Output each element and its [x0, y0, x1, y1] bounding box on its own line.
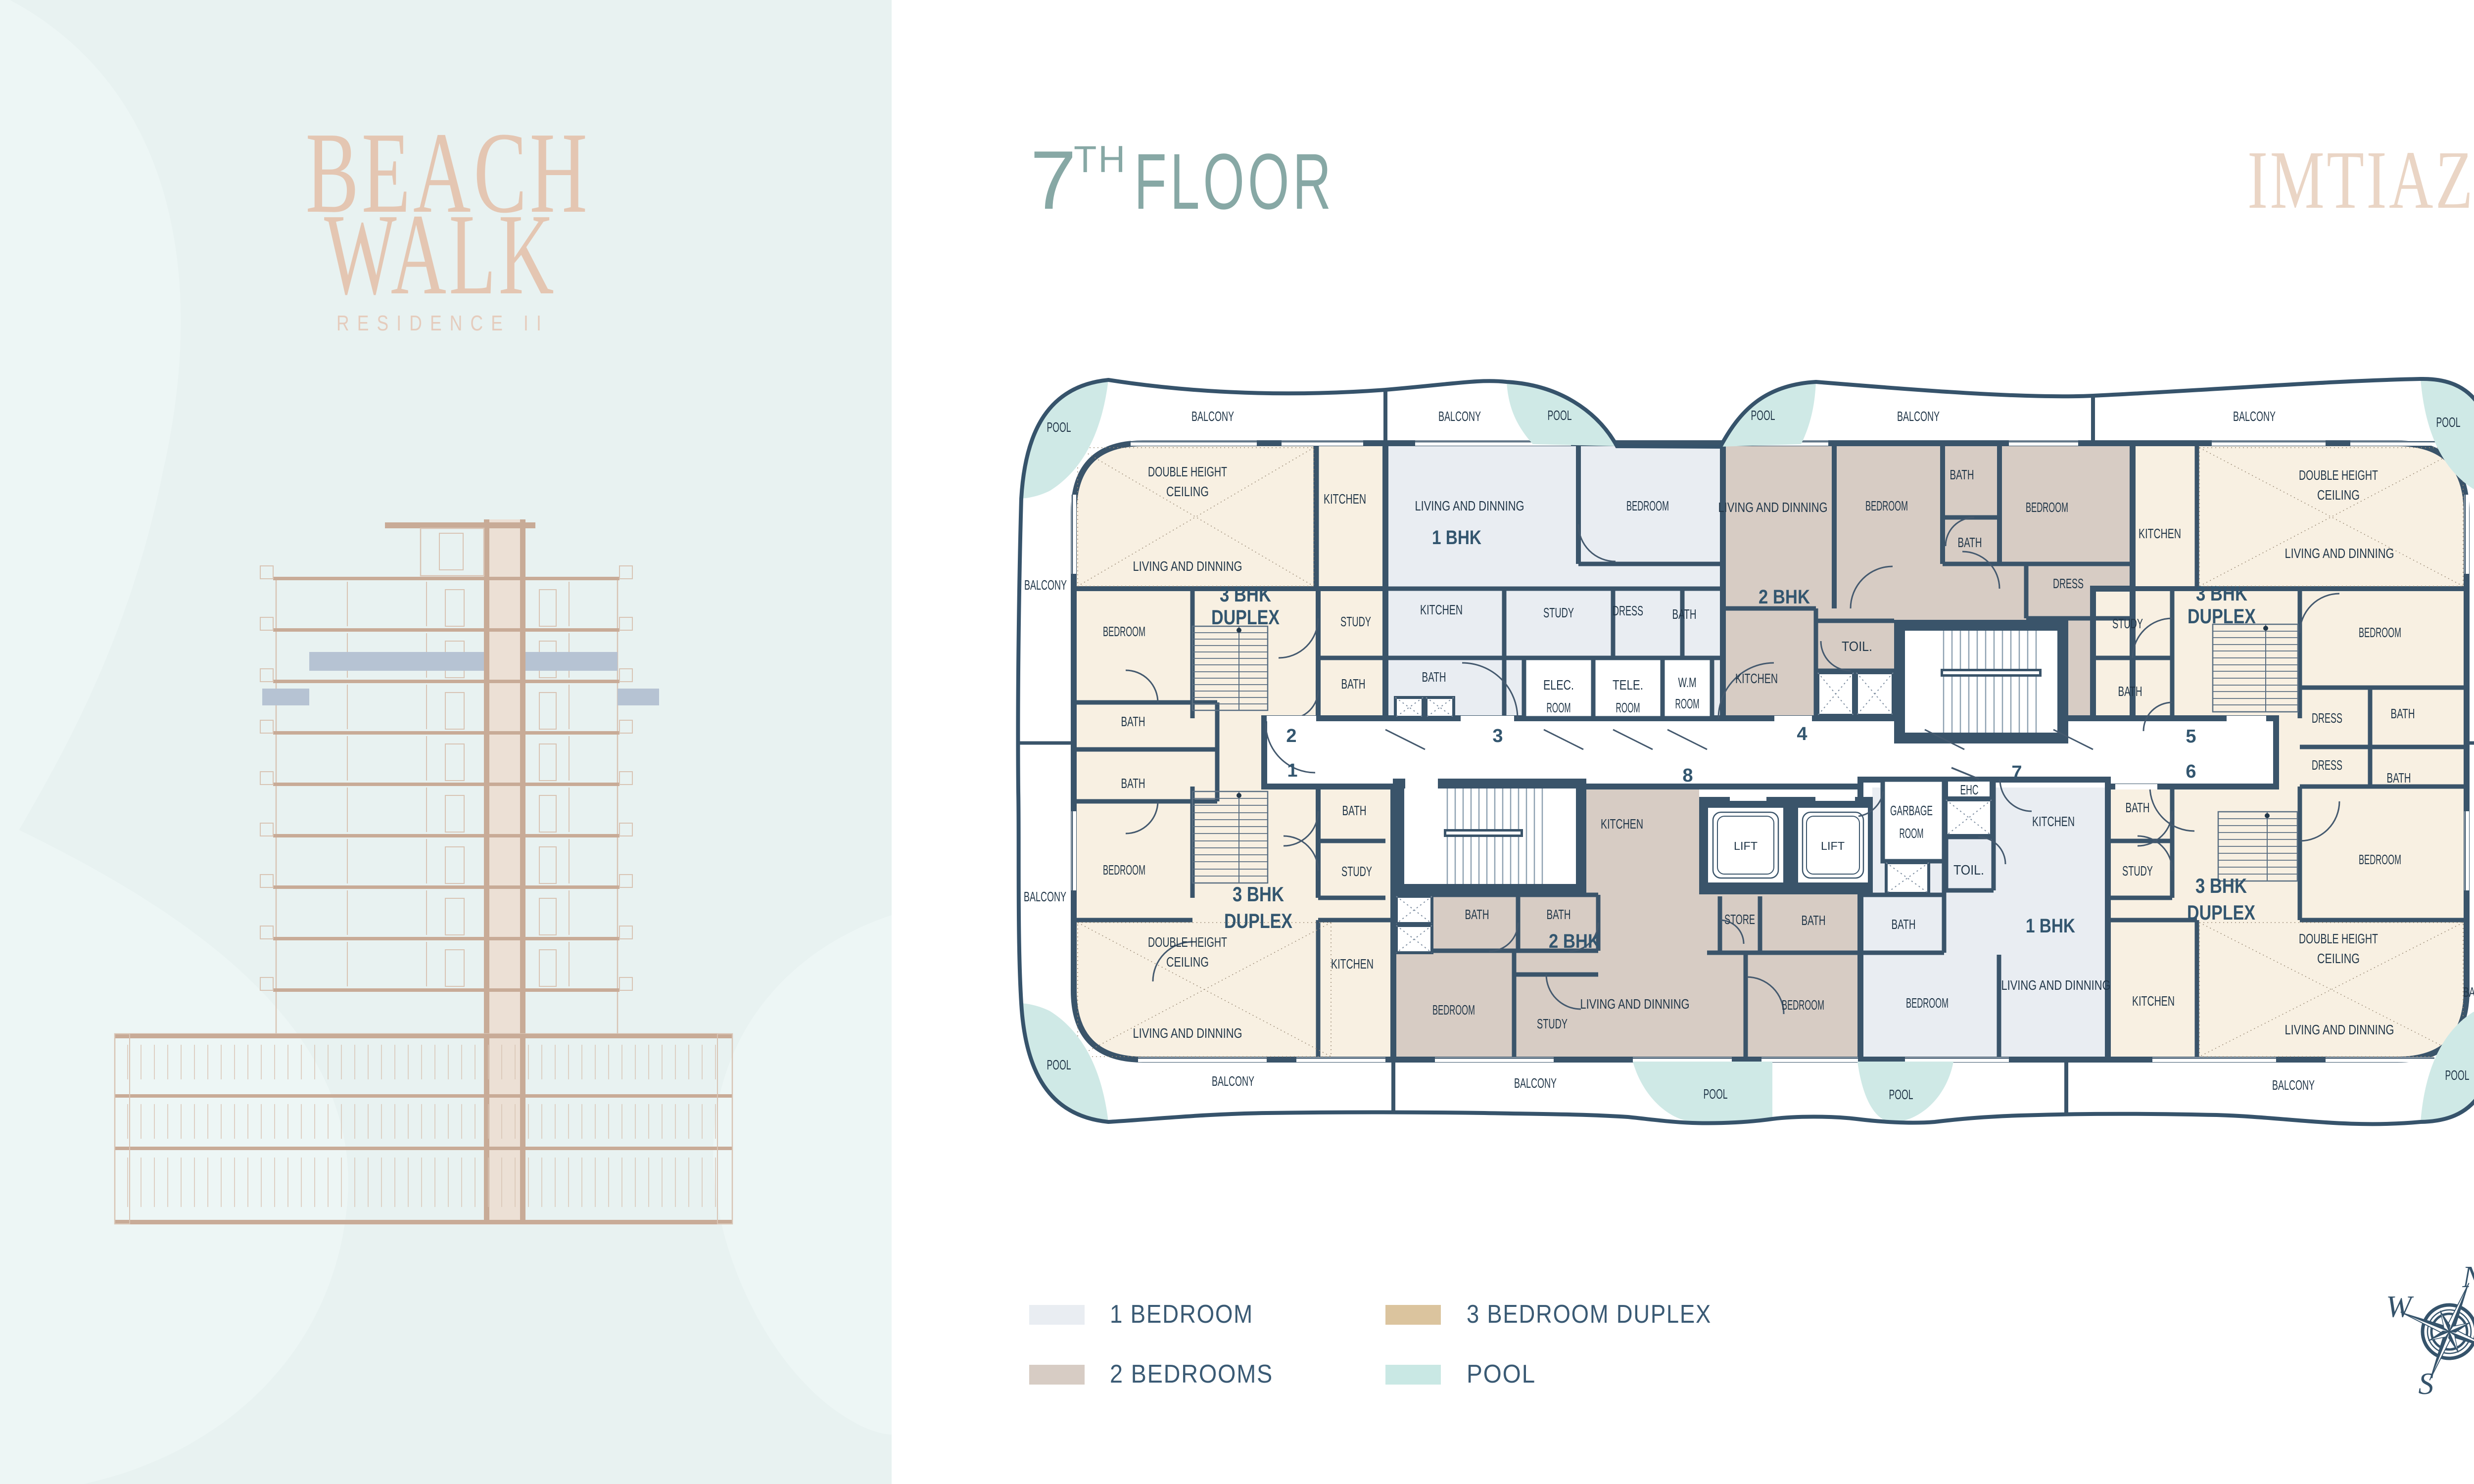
- svg-text:BALCONY: BALCONY: [2272, 1077, 2315, 1093]
- svg-text:KITCHEN: KITCHEN: [2132, 993, 2175, 1009]
- svg-text:ROOM: ROOM: [1547, 700, 1571, 715]
- svg-text:BEDROOM: BEDROOM: [1782, 997, 1824, 1013]
- svg-text:BEDROOM: BEDROOM: [2026, 500, 2068, 515]
- svg-text:1 BHK: 1 BHK: [2026, 915, 2075, 937]
- svg-text:3 BHK: 3 BHK: [2196, 582, 2247, 605]
- svg-text:3 BHK: 3 BHK: [1233, 882, 1284, 906]
- svg-text:LIVING AND DINNING: LIVING AND DINNING: [1415, 498, 1524, 513]
- svg-text:BALCONY: BALCONY: [1438, 409, 1481, 424]
- svg-text:LIVING AND DINNING: LIVING AND DINNING: [2285, 546, 2394, 561]
- svg-text:DRESS: DRESS: [1613, 603, 1643, 618]
- svg-text:ROOM: ROOM: [1900, 826, 1924, 841]
- svg-text:STUDY: STUDY: [1537, 1016, 1568, 1031]
- svg-text:BALCONY: BALCONY: [2233, 409, 2276, 424]
- svg-text:EHC: EHC: [1960, 782, 1979, 797]
- svg-text:2 BHK: 2 BHK: [1759, 586, 1810, 608]
- svg-text:IMTIAZ: IMTIAZ: [2247, 134, 2474, 226]
- svg-text:POOL: POOL: [1751, 408, 1775, 423]
- svg-text:2: 2: [1286, 726, 1296, 746]
- svg-text:ROOM: ROOM: [1616, 700, 1640, 715]
- svg-text:KITCHEN: KITCHEN: [1735, 671, 1778, 686]
- svg-text:ROOM: ROOM: [1675, 696, 1700, 711]
- svg-text:BEDROOM: BEDROOM: [1103, 624, 1145, 639]
- svg-text:3 BEDROOM DUPLEX: 3 BEDROOM DUPLEX: [1467, 1300, 1712, 1329]
- svg-text:BATH: BATH: [1422, 669, 1446, 685]
- svg-text:BATH: BATH: [2391, 706, 2415, 721]
- svg-text:1: 1: [1287, 760, 1297, 781]
- svg-text:GARBAGE: GARBAGE: [1890, 803, 1933, 818]
- svg-text:POOL: POOL: [1047, 1057, 1071, 1072]
- svg-text:POOL: POOL: [1889, 1087, 1913, 1102]
- svg-text:STUDY: STUDY: [1341, 864, 1372, 879]
- svg-text:1 BHK: 1 BHK: [1432, 527, 1481, 549]
- svg-text:BATH: BATH: [2126, 800, 2150, 815]
- svg-text:STUDY: STUDY: [1340, 614, 1371, 629]
- svg-text:BALCONY: BALCONY: [1897, 409, 1940, 424]
- svg-text:BATH: BATH: [1121, 776, 1145, 791]
- svg-text:KITCHEN: KITCHEN: [2139, 526, 2181, 541]
- svg-text:TELE.: TELE.: [1613, 677, 1643, 693]
- svg-text:KITCHEN: KITCHEN: [1601, 816, 1643, 832]
- svg-text:BEDROOM: BEDROOM: [1626, 498, 1669, 513]
- svg-text:LIFT: LIFT: [1821, 839, 1845, 852]
- svg-text:POOL: POOL: [2436, 415, 2461, 430]
- svg-text:CEILING: CEILING: [2317, 487, 2360, 503]
- svg-text:POOL: POOL: [2445, 1067, 2470, 1083]
- svg-text:CEILING: CEILING: [1166, 954, 1209, 970]
- svg-text:CEILING: CEILING: [1166, 484, 1209, 499]
- svg-text:BATH: BATH: [1121, 714, 1145, 729]
- svg-text:BATH: BATH: [1342, 803, 1367, 818]
- svg-text:BEDROOM: BEDROOM: [2359, 852, 2401, 867]
- svg-text:CEILING: CEILING: [2317, 951, 2360, 966]
- svg-text:3: 3: [1492, 726, 1503, 746]
- svg-text:POOL: POOL: [1467, 1360, 1536, 1389]
- svg-text:BATH: BATH: [1547, 907, 1571, 922]
- svg-text:BALCONY: BALCONY: [1191, 409, 1234, 424]
- svg-text:BALCONY: BALCONY: [1514, 1075, 1557, 1091]
- svg-text:DOUBLE HEIGHT: DOUBLE HEIGHT: [1148, 464, 1227, 479]
- svg-text:BATH: BATH: [2387, 770, 2411, 786]
- svg-text:FLOOR: FLOOR: [1134, 137, 1334, 226]
- svg-text:2 BHK: 2 BHK: [1549, 930, 1600, 952]
- svg-text:BEDROOM: BEDROOM: [1103, 862, 1145, 878]
- svg-text:POOL: POOL: [1548, 408, 1572, 423]
- svg-text:W.M: W.M: [1678, 675, 1697, 690]
- svg-text:LIVING AND DINNING: LIVING AND DINNING: [1580, 996, 1690, 1012]
- svg-text:BATH: BATH: [1892, 917, 1916, 932]
- svg-text:BATH: BATH: [1958, 535, 1982, 550]
- svg-text:BATH: BATH: [1672, 606, 1697, 622]
- svg-text:DUPLEX: DUPLEX: [1211, 605, 1280, 629]
- svg-text:LIVING AND DINNING: LIVING AND DINNING: [2285, 1022, 2394, 1037]
- svg-text:6: 6: [2186, 761, 2196, 782]
- svg-text:3 BHK: 3 BHK: [1220, 583, 1271, 606]
- svg-text:BATH: BATH: [1341, 676, 1366, 692]
- svg-text:8: 8: [1682, 765, 1693, 786]
- svg-text:POOL: POOL: [1047, 419, 1071, 435]
- svg-text:2 BEDROOMS: 2 BEDROOMS: [1110, 1360, 1273, 1389]
- svg-text:4: 4: [1797, 724, 1807, 744]
- svg-text:TOIL.: TOIL.: [1842, 639, 1872, 654]
- svg-text:BEDROOM: BEDROOM: [1865, 498, 1908, 513]
- svg-text:DUPLEX: DUPLEX: [1224, 909, 1292, 932]
- svg-text:3 BHK: 3 BHK: [2195, 874, 2247, 897]
- svg-text:BEDROOM: BEDROOM: [1906, 995, 1949, 1011]
- svg-text:DRESS: DRESS: [2312, 710, 2342, 726]
- svg-text:POOL: POOL: [1704, 1086, 1728, 1102]
- svg-text:LIVING AND DINNING: LIVING AND DINNING: [1718, 500, 1828, 515]
- svg-text:KITCHEN: KITCHEN: [1420, 602, 1463, 617]
- svg-text:RESIDENCE II: RESIDENCE II: [336, 311, 549, 335]
- svg-text:LIFT: LIFT: [1734, 839, 1758, 852]
- svg-text:STORE: STORE: [1724, 912, 1755, 927]
- svg-text:LIVING AND DINNING: LIVING AND DINNING: [1133, 558, 1242, 574]
- svg-text:7: 7: [1030, 134, 1076, 227]
- svg-text:BATH: BATH: [1802, 913, 1826, 928]
- svg-text:1 BEDROOM: 1 BEDROOM: [1110, 1300, 1253, 1329]
- svg-text:7: 7: [2011, 762, 2022, 783]
- svg-text:BEDROOM: BEDROOM: [2359, 625, 2401, 640]
- svg-text:KITCHEN: KITCHEN: [1331, 956, 1374, 972]
- svg-text:BATH: BATH: [1950, 467, 1974, 482]
- svg-text:BEDROOM: BEDROOM: [1432, 1002, 1475, 1018]
- svg-text:DRESS: DRESS: [2312, 757, 2342, 773]
- svg-text:KITCHEN: KITCHEN: [2032, 814, 2075, 829]
- svg-text:DUPLEX: DUPLEX: [2187, 901, 2255, 924]
- svg-text:N: N: [2462, 1260, 2474, 1294]
- svg-text:BALCONY: BALCONY: [1212, 1073, 1254, 1089]
- svg-text:BALCONY: BALCONY: [2463, 984, 2474, 1000]
- svg-text:BALCONY: BALCONY: [1024, 577, 1067, 593]
- svg-text:BATH: BATH: [2118, 684, 2142, 699]
- svg-text:S: S: [2419, 1367, 2434, 1401]
- svg-text:BATH: BATH: [1465, 907, 1489, 922]
- svg-text:TH: TH: [1074, 139, 1127, 181]
- svg-text:DUPLEX: DUPLEX: [2188, 604, 2256, 628]
- svg-text:W: W: [2386, 1290, 2414, 1324]
- svg-text:WALK: WALK: [324, 190, 557, 319]
- svg-text:5: 5: [2186, 726, 2196, 747]
- svg-text:DRESS: DRESS: [2053, 576, 2084, 591]
- svg-text:TOIL.: TOIL.: [1953, 862, 1984, 878]
- svg-text:KITCHEN: KITCHEN: [1324, 491, 1366, 507]
- svg-text:DOUBLE HEIGHT: DOUBLE HEIGHT: [2299, 467, 2378, 483]
- svg-text:STUDY: STUDY: [1543, 605, 1574, 620]
- svg-text:STUDY: STUDY: [2122, 863, 2153, 879]
- svg-text:DOUBLE HEIGHT: DOUBLE HEIGHT: [2299, 931, 2378, 946]
- svg-text:BALCONY: BALCONY: [1024, 889, 1066, 904]
- svg-text:STUDY: STUDY: [2112, 616, 2143, 631]
- svg-text:DOUBLE HEIGHT: DOUBLE HEIGHT: [1148, 934, 1227, 950]
- svg-text:ELEC.: ELEC.: [1543, 677, 1574, 693]
- svg-text:LIVING AND DINNING: LIVING AND DINNING: [2001, 977, 2111, 993]
- svg-text:LIVING AND DINNING: LIVING AND DINNING: [1133, 1025, 1242, 1041]
